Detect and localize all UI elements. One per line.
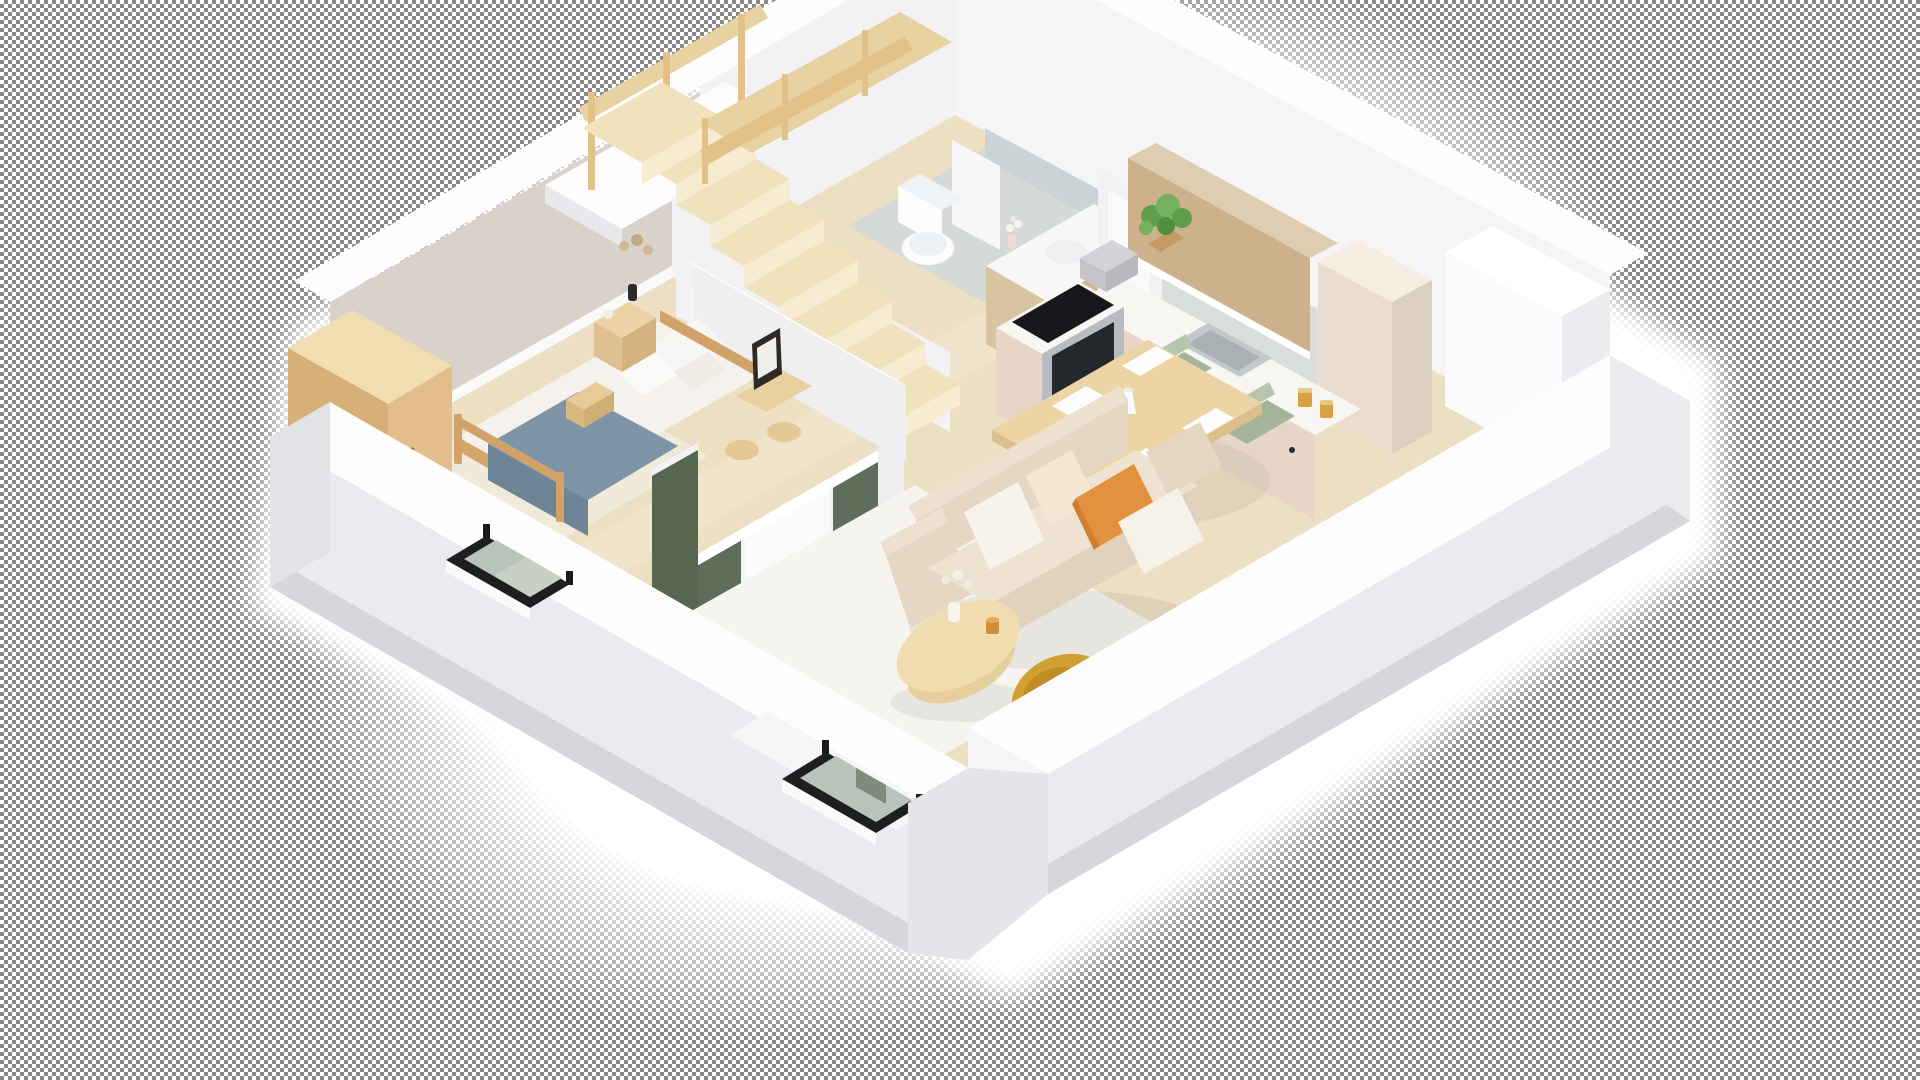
black-vase: [628, 284, 637, 301]
apartment-render: [0, 0, 1920, 1080]
floorplan-canvas: [0, 0, 1920, 1080]
railing-post: [782, 74, 788, 140]
flower-vase: [1008, 234, 1016, 249]
railing-post: [588, 92, 595, 190]
cabinet-knob: [1289, 447, 1295, 453]
railing-post: [738, 14, 745, 112]
amber-cup: [986, 617, 999, 634]
railing-post: [702, 118, 708, 184]
mug: [603, 309, 613, 319]
railing-post: [862, 30, 868, 96]
